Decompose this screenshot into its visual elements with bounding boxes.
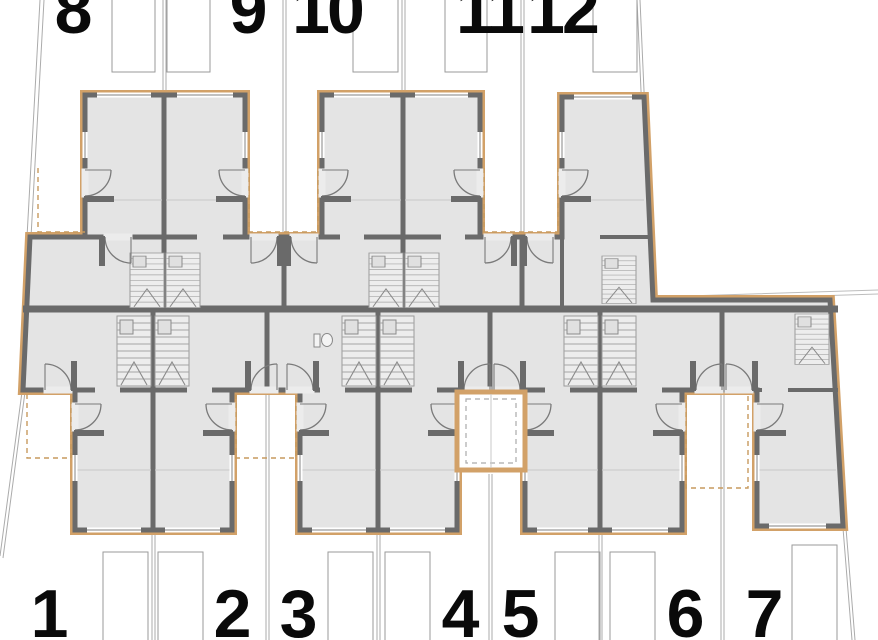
unit-label-7: 7 xyxy=(746,576,781,640)
unit-label-1: 1 xyxy=(31,576,67,640)
unit-label-8: 8 xyxy=(55,0,91,48)
lot-boundary-right-lower xyxy=(843,528,855,640)
stair-core xyxy=(117,316,151,386)
stair-core xyxy=(130,253,164,308)
parking-space xyxy=(593,0,637,72)
porch-outline xyxy=(686,394,748,488)
parking-space xyxy=(555,552,600,640)
unit-label-4: 4 xyxy=(442,576,480,640)
unit-labels-top: 8 9 10 11 12 xyxy=(55,0,598,48)
wc-fixture xyxy=(314,334,333,348)
parking-space xyxy=(385,552,430,640)
lot-boundary-2-3 xyxy=(266,394,269,640)
stair-core xyxy=(564,316,598,386)
lot-boundary-4-5 xyxy=(489,474,492,640)
lot-boundary-10-11 xyxy=(402,0,405,93)
parking-space xyxy=(112,0,155,72)
parking-space xyxy=(158,552,203,640)
parking-space xyxy=(103,552,148,640)
unit-label-10: 10 xyxy=(292,0,363,48)
floor-plan-drawing: 8 9 10 11 12 1 2 3 4 5 6 7 xyxy=(0,0,878,640)
entry-court-4-5 xyxy=(457,392,525,470)
lot-boundary-9-10 xyxy=(283,0,286,235)
parking-space xyxy=(610,552,655,640)
stair-core xyxy=(795,314,829,364)
unit-label-2: 2 xyxy=(214,576,250,640)
stair-core xyxy=(602,316,636,386)
stair-core xyxy=(342,316,376,386)
porch-outline xyxy=(38,168,85,232)
unit-label-11: 11 xyxy=(456,0,523,48)
lot-boundary-3-4 xyxy=(377,532,380,640)
unit-label-9: 9 xyxy=(230,0,266,48)
lot-boundary-6-7 xyxy=(721,394,724,640)
stair-core xyxy=(380,316,414,386)
stair-core xyxy=(155,316,189,386)
stair-core xyxy=(602,256,636,304)
stair-core xyxy=(405,253,439,308)
parking-space xyxy=(328,552,373,640)
lot-boundary-1-2 xyxy=(152,532,155,640)
stair-core xyxy=(369,253,403,308)
unit-label-3: 3 xyxy=(280,576,316,640)
parking-space xyxy=(792,545,837,640)
unit-label-5: 5 xyxy=(502,576,538,640)
porch-outline xyxy=(27,394,71,458)
floor-plan-page: 8 9 10 11 12 1 2 3 4 5 6 7 xyxy=(0,0,878,640)
stair-core xyxy=(166,253,200,308)
unit-labels-bottom: 1 2 3 4 5 6 7 xyxy=(31,576,781,640)
unit-label-12: 12 xyxy=(527,0,598,48)
lot-boundary-8-9 xyxy=(163,0,166,93)
lot-boundary-left-lower xyxy=(0,392,25,558)
unit-label-6: 6 xyxy=(667,576,703,640)
parking-space xyxy=(167,0,210,72)
lot-boundary-left-upper xyxy=(27,0,44,237)
